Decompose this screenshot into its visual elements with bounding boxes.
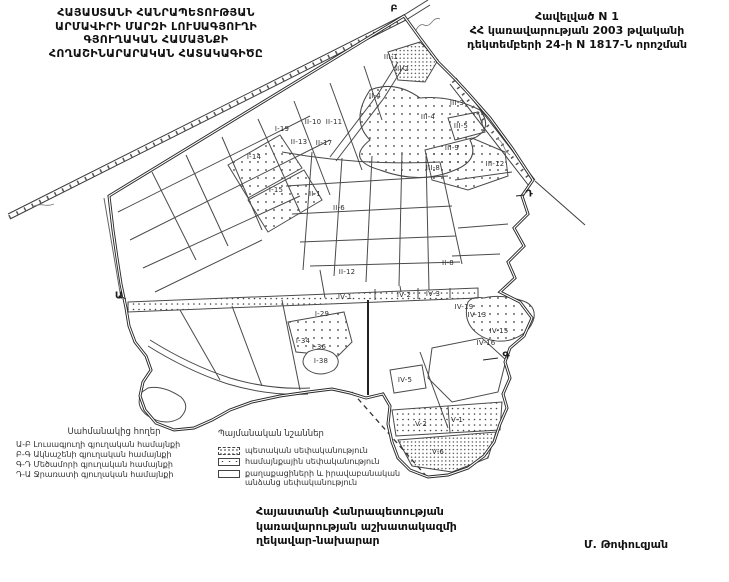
signature-name: Մ. Թոփուզյան	[584, 538, 668, 551]
footer-line: ղեկավար-նախարար	[256, 534, 556, 549]
adjacent-land-item: Ա-Բ Լուսագյուղի գյուղական համայնքի	[16, 440, 212, 450]
legend-adjacent-lands: Սահմանակից հողեր Ա-Բ Լուսագյուղի գյուղակ…	[16, 427, 212, 480]
sparse-dotted-swatch-icon	[218, 458, 240, 466]
symbol-legend-label: քաղաքացիների և իրավաբանական անձանց սեփակ…	[245, 469, 408, 488]
symbol-legend-label: համայնքային սեփականություն	[245, 457, 408, 467]
footer-signature-block: Հայաստանի Հանրապետությանկառավարության աշ…	[256, 505, 556, 549]
map-title: ՀԱՅԱՍՏԱՆԻ ՀԱՆՐԱՊԵՏՈՒԹՅԱՆԱՐՄԱՎԻՐԻ ՄԱՐԶԻ Լ…	[6, 6, 306, 60]
annex-line: ՀՀ կառավարության 2003 թվականի	[428, 24, 726, 38]
annex-note: Հավելված N 1ՀՀ կառավարության 2003 թվական…	[428, 10, 726, 52]
symbol-legend-item: համայնքային սեփականություն	[218, 457, 408, 467]
dense-dotted-swatch-icon	[218, 447, 240, 455]
cadastral-map	[0, 0, 729, 582]
symbol-legend-item: քաղաքացիների և իրավաբանական անձանց սեփակ…	[218, 469, 408, 488]
map-title-line: ՀԱՅԱՍՏԱՆԻ ՀԱՆՐԱՊԵՏՈՒԹՅԱՆ	[6, 6, 306, 20]
adjacent-land-item: Բ-Գ Ակնաշենի գյուղական համայնքի	[16, 450, 212, 460]
symbol-legend-label: պետական սեփականություն	[245, 446, 408, 456]
footer-line: կառավարության աշխատակազմի	[256, 520, 556, 535]
map-title-line: ՀՈՂԱՇԻՆԱՐԱՐԱԿԱՆ ՀԱՏԱԿԱԳԻԾԸ	[6, 47, 306, 61]
footer-line: Հայաստանի Հանրապետության	[256, 505, 556, 520]
map-title-line: ԳՅՈՒՂԱԿԱՆ ՀԱՄԱՅՆՔԻ	[6, 33, 306, 47]
annex-line: դեկտեմբերի 24-ի N 1817-Ն որոշման	[428, 38, 726, 52]
legend-adjacent-title: Սահմանակից հողեր	[16, 427, 212, 437]
annex-line: Հավելված N 1	[428, 10, 726, 24]
adjacent-land-item: Գ-Դ Մեծամորի գյուղական համայնքի	[16, 460, 212, 470]
legend-symbols-title: Պայմանական նշաններ	[218, 430, 408, 440]
map-title-line: ԱՐՄԱՎԻՐԻ ՄԱՐԶԻ ԼՈՒՍԱԳՅՈՒՂԻ	[6, 20, 306, 34]
adjacent-land-item: Դ-Ա Ջրառատի գյուղական համայնքի	[16, 470, 212, 480]
plain-swatch-icon	[218, 470, 240, 478]
legend-conventional-signs: Պայմանական նշաններ պետական սեփականությու…	[218, 430, 408, 490]
symbol-legend-item: պետական սեփականություն	[218, 446, 408, 456]
